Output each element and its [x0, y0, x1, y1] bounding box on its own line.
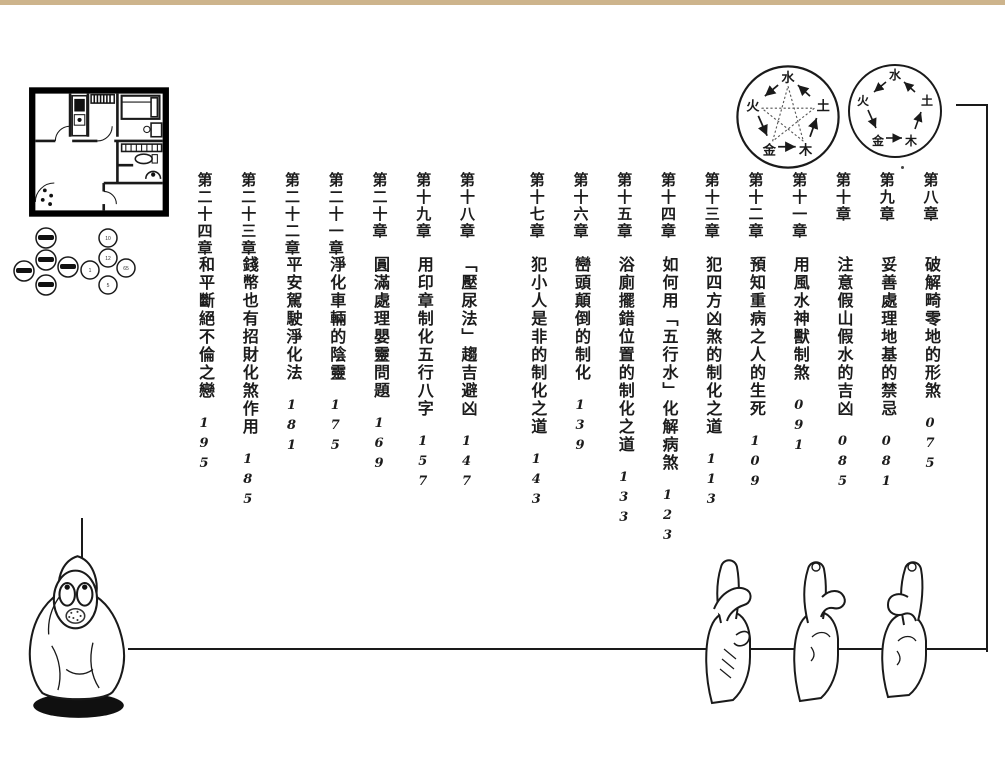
chapter-page-number: 091	[791, 398, 806, 458]
chapter-number: 第十章	[832, 172, 853, 256]
toc-entry-ch20: 第二十章 圓滿處理嬰靈問題 169	[363, 172, 395, 658]
element-wood: 木	[798, 141, 813, 157]
toc-entry-ch16: 第十六章 巒頭顛倒的制化 139	[564, 172, 596, 658]
cycle-arrows	[868, 82, 921, 138]
chapter-page-number: 157	[415, 434, 430, 494]
toc-entry-ch21: 第二十一章 淨化車輛的陰靈 175	[319, 172, 351, 658]
chapter-number: 第十八章	[456, 172, 477, 256]
coin-cluster-right: 10 12 1 65 5	[81, 229, 135, 294]
chapter-page-number: 109	[748, 434, 763, 494]
chapter-title: 「壓尿法」趨吉避凶	[455, 256, 479, 418]
coin-label: 12	[105, 256, 111, 262]
chapter-page-number: 075	[923, 416, 938, 476]
chapter-number: 第二十一章	[325, 172, 346, 256]
chapter-number: 第十五章	[613, 172, 634, 256]
cycle-arrows	[758, 85, 816, 147]
chapter-title: 圓滿處理嬰靈問題	[367, 256, 391, 400]
chapter-number: 第二十章	[369, 172, 390, 256]
coin-label: 5	[107, 283, 110, 289]
toc-entry-ch15: 第十五章 浴廁擺錯位置的制化之道 133	[608, 172, 640, 658]
chapter-number: 第十九章	[412, 172, 433, 256]
chapter-number: 第十二章	[745, 172, 766, 256]
pentagram-star	[762, 86, 815, 141]
element-metal: 金	[762, 141, 777, 157]
chapter-page-number: 133	[616, 470, 631, 530]
toc-entry-ch24: 第二十四章 和平斷絕不倫之戀 195	[188, 172, 220, 658]
chapter-title: 如何用「五行水」化解病煞	[656, 256, 680, 472]
coin-label: 1	[89, 268, 92, 274]
chapter-number: 第十七章	[526, 172, 547, 256]
five-element-circle-pentagram: 水 土 木 金 火	[733, 62, 843, 172]
element-earth: 土	[817, 97, 830, 113]
frame-rule-right	[986, 104, 988, 652]
chapter-page-number: 175	[328, 398, 343, 458]
chapter-title: 巒頭顛倒的制化	[568, 256, 592, 382]
chapter-title: 破解畸零地的形煞	[918, 256, 942, 400]
ghost-illustration	[20, 548, 135, 723]
chapter-title: 用印章制化五行八字	[411, 256, 435, 418]
frame-rule-top	[956, 104, 988, 106]
element-water: 水	[781, 69, 795, 85]
mudra-hands-illustration	[690, 545, 942, 710]
five-element-circle-cycle: 水 土 木 金 火	[845, 61, 945, 161]
toc-entry-ch18: 第十八章 「壓尿法」趨吉避凶 147	[451, 172, 483, 658]
chapter-page-number: 143	[529, 452, 544, 512]
chapter-title: 錢幣也有招財化煞作用	[236, 256, 260, 436]
chapter-page-number: 085	[835, 434, 850, 494]
chapter-number: 第十一章	[788, 172, 809, 256]
coin-arrangement-diagram: 10 12 1 65 5	[8, 222, 143, 307]
chapter-title: 犯小人是非的制化之道	[524, 256, 548, 436]
chapter-number: 第二十四章	[194, 172, 215, 256]
mudra-hand-2	[794, 562, 845, 701]
coin-cluster-left	[14, 228, 78, 295]
element-earth: 土	[921, 93, 933, 108]
chapter-page-number: 169	[372, 416, 387, 476]
chapter-number: 第十四章	[657, 172, 678, 256]
chapter-title: 和平斷絕不倫之戀	[192, 256, 216, 400]
chapter-number: 第八章	[920, 172, 941, 256]
chapter-title: 淨化車輛的陰靈	[323, 256, 347, 382]
chapter-number: 第二十二章	[281, 172, 302, 256]
chapter-page-number: 185	[240, 452, 255, 512]
chapter-title: 預知重病之人的生死	[743, 256, 767, 418]
book-page: 10 12 1 65 5 水 土 木 金 火	[0, 0, 1005, 762]
toc-entry-ch22: 第二十二章 平安駕駛淨化法 181	[276, 172, 308, 658]
chapter-title: 注意假山假水的吉凶	[831, 256, 855, 418]
chapter-page-number: 081	[879, 434, 894, 494]
chapter-title: 用風水神獸制煞	[787, 256, 811, 382]
chapter-title: 妥善處理地基的禁忌	[874, 256, 898, 418]
ink-speck	[901, 166, 904, 169]
chapter-title: 浴廁擺錯位置的制化之道	[612, 256, 636, 454]
scan-edge-strip	[0, 0, 1005, 5]
chapter-page-number: 147	[459, 434, 474, 494]
element-wood: 木	[904, 133, 918, 148]
element-metal: 金	[871, 133, 885, 148]
element-water: 水	[889, 67, 902, 82]
coin-label: 65	[123, 266, 129, 272]
chapter-page-number: 113	[704, 452, 719, 512]
toc-entry-ch14: 第十四章 如何用「五行水」化解病煞 123	[652, 172, 684, 658]
element-fire: 火	[746, 98, 760, 113]
coin-label: 10	[105, 236, 111, 242]
chapter-number: 第十六章	[570, 172, 591, 256]
chapter-page-number: 139	[573, 398, 588, 458]
mudra-hand-1	[706, 560, 750, 703]
chapter-page-number: 195	[197, 416, 212, 476]
element-fire: 火	[857, 94, 870, 108]
chapter-number: 第十三章	[701, 172, 722, 256]
toc-entry-ch23: 第二十三章 錢幣也有招財化煞作用 185	[232, 172, 264, 658]
chapter-title: 平安駕駛淨化法	[280, 256, 304, 382]
chapter-page-number: 123	[660, 488, 675, 548]
chapter-number: 第二十三章	[237, 172, 258, 256]
toc-entry-ch19: 第十九章 用印章制化五行八字 157	[407, 172, 439, 658]
toc-entry-ch17: 第十七章 犯小人是非的制化之道 143	[520, 172, 552, 658]
chapter-page-number: 181	[284, 398, 299, 458]
chapter-title: 犯四方凶煞的制化之道	[699, 256, 723, 436]
chapter-number: 第九章	[876, 172, 897, 256]
floorplan-illustration	[28, 86, 170, 218]
mudra-hand-3	[882, 562, 926, 697]
